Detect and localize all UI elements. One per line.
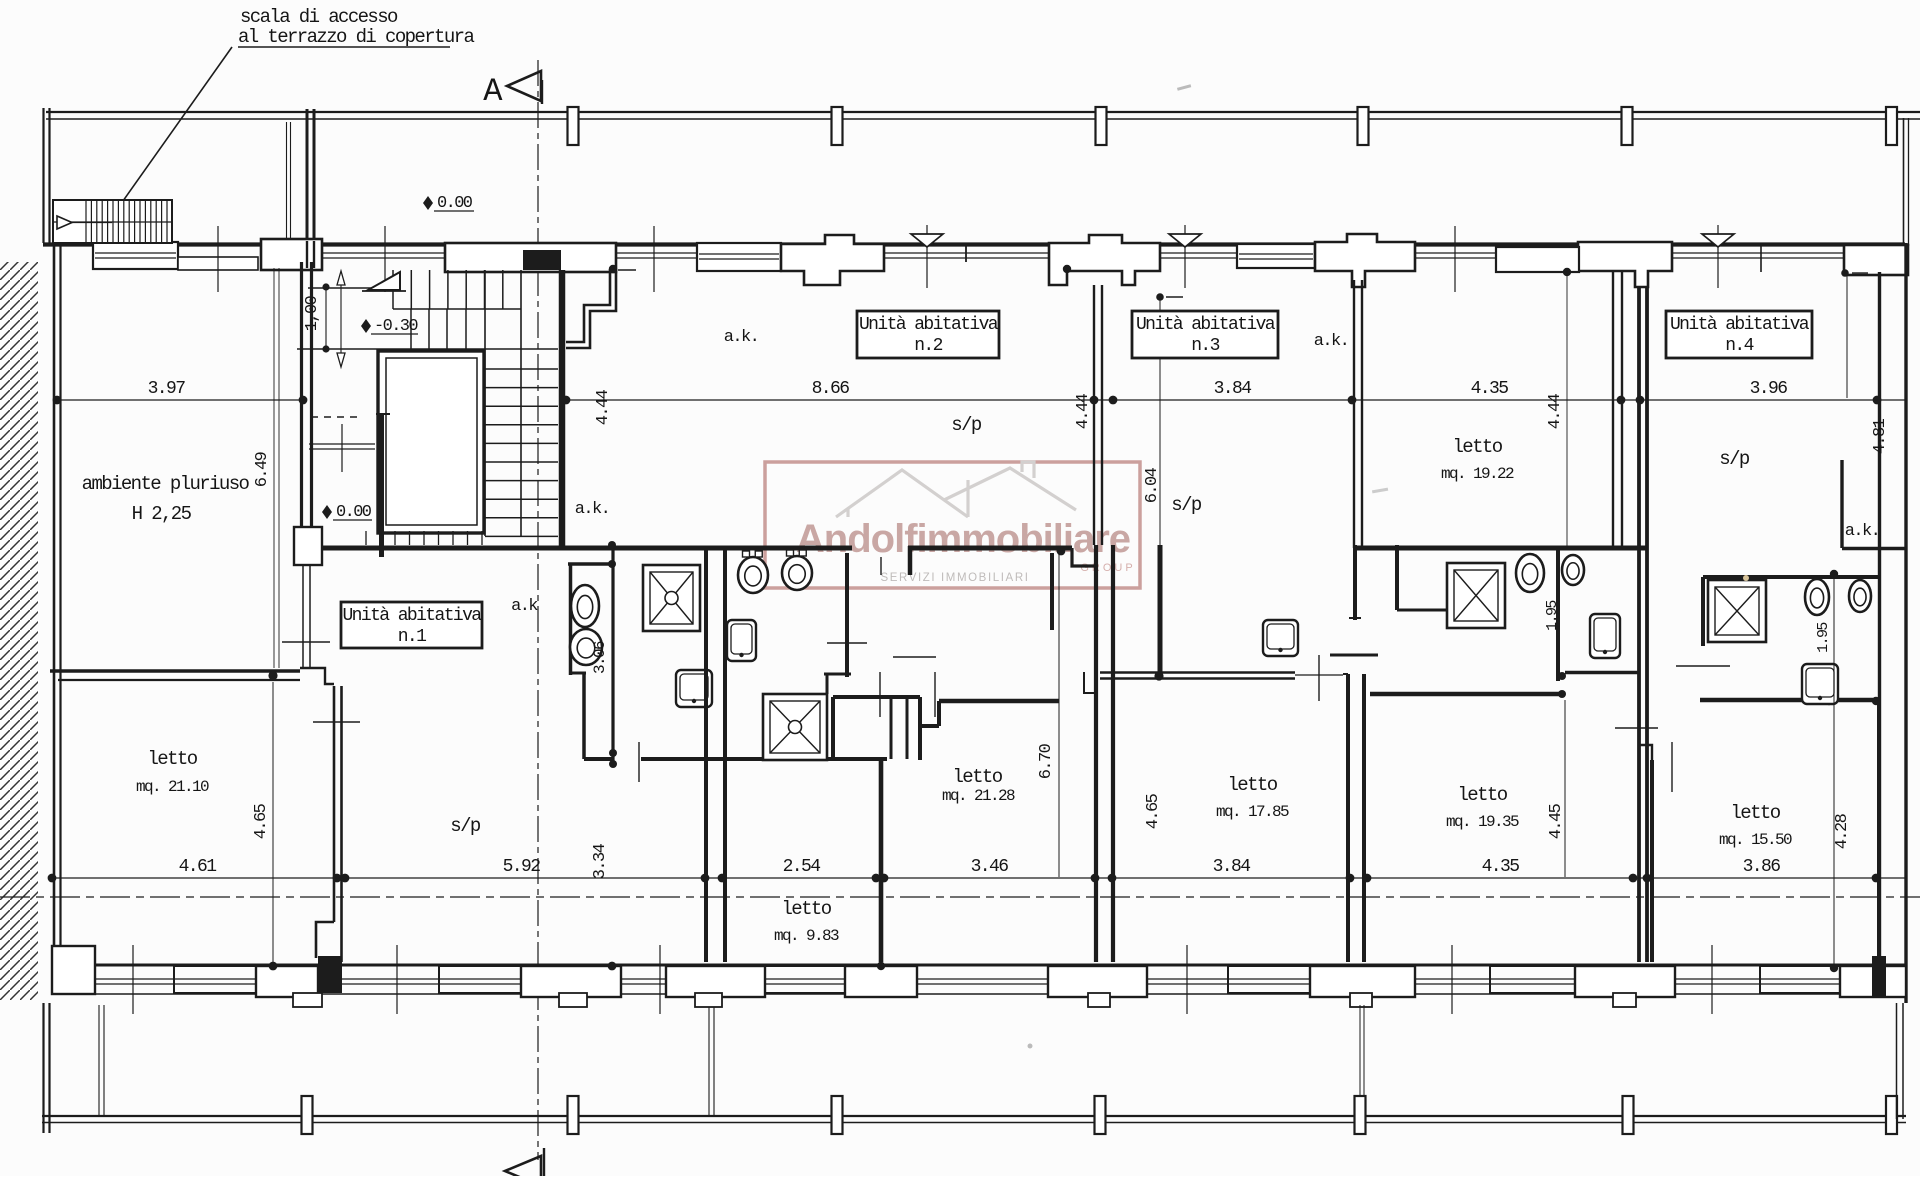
svg-text:letto: letto bbox=[781, 898, 831, 920]
svg-text:8.66: 8.66 bbox=[812, 379, 850, 399]
svg-text:letto: letto bbox=[1227, 774, 1277, 796]
svg-text:a.k: a.k bbox=[511, 597, 538, 616]
svg-text:letto: letto bbox=[1730, 802, 1780, 824]
svg-text:Unità abitativa: Unità abitativa bbox=[859, 315, 999, 335]
svg-text:4.35: 4.35 bbox=[1471, 379, 1509, 399]
svg-text:3.97: 3.97 bbox=[148, 379, 186, 399]
svg-text:s/p: s/p bbox=[1171, 494, 1202, 516]
svg-text:1.95: 1.95 bbox=[1815, 622, 1832, 653]
svg-text:4.44: 4.44 bbox=[594, 389, 613, 425]
svg-text:0.00: 0.00 bbox=[437, 194, 473, 213]
svg-text:s/p: s/p bbox=[951, 414, 982, 436]
svg-text:A: A bbox=[483, 73, 503, 110]
svg-text:6.04: 6.04 bbox=[1143, 467, 1162, 503]
svg-text:letto: letto bbox=[1457, 784, 1507, 806]
svg-text:n.1: n.1 bbox=[398, 627, 426, 647]
svg-text:Unità abitativa: Unità abitativa bbox=[1670, 315, 1810, 335]
svg-text:al terrazzo di copertura: al terrazzo di copertura bbox=[238, 26, 474, 48]
svg-text:4.61: 4.61 bbox=[179, 857, 217, 877]
svg-text:mq. 9.83: mq. 9.83 bbox=[774, 927, 839, 945]
svg-text:a.k.: a.k. bbox=[724, 328, 758, 347]
svg-text:mq. 19.35: mq. 19.35 bbox=[1446, 813, 1519, 831]
svg-text:4.28: 4.28 bbox=[1833, 813, 1852, 849]
svg-text:ambiente pluriuso: ambiente pluriuso bbox=[82, 473, 250, 495]
svg-text:2.54: 2.54 bbox=[783, 857, 821, 877]
svg-text:3.84: 3.84 bbox=[1214, 379, 1252, 399]
svg-text:mq. 21.10: mq. 21.10 bbox=[136, 778, 209, 796]
svg-text:5.92: 5.92 bbox=[503, 857, 541, 877]
svg-text:H 2,25: H 2,25 bbox=[132, 503, 192, 525]
svg-text:a.k.: a.k. bbox=[575, 500, 609, 519]
svg-text:letto: letto bbox=[1452, 436, 1502, 458]
svg-text:3.84: 3.84 bbox=[1213, 857, 1251, 877]
svg-text:GROUP: GROUP bbox=[1080, 562, 1135, 574]
svg-text:4.81: 4.81 bbox=[1871, 418, 1890, 454]
svg-text:n.3: n.3 bbox=[1191, 336, 1219, 356]
svg-text:mq. 17.85: mq. 17.85 bbox=[1216, 803, 1289, 821]
svg-text:0.00: 0.00 bbox=[336, 503, 372, 522]
svg-text:4.65: 4.65 bbox=[252, 803, 271, 839]
svg-text:a.k.: a.k. bbox=[1845, 522, 1879, 541]
svg-text:mq. 19.22: mq. 19.22 bbox=[1441, 465, 1514, 483]
svg-text:scala di accesso: scala di accesso bbox=[240, 6, 398, 28]
svg-text:4.44: 4.44 bbox=[1074, 393, 1093, 429]
svg-text:3.34: 3.34 bbox=[591, 843, 610, 879]
svg-text:4.35: 4.35 bbox=[1482, 857, 1520, 877]
svg-text:SERVIZI IMMOBILIARI: SERVIZI IMMOBILIARI bbox=[880, 572, 1029, 584]
svg-text:4.65: 4.65 bbox=[1144, 793, 1163, 829]
svg-text:Unità abitativa: Unità abitativa bbox=[342, 606, 482, 626]
svg-text:4.44: 4.44 bbox=[1546, 393, 1565, 429]
svg-text:3.96: 3.96 bbox=[1750, 379, 1788, 399]
svg-text:n.2: n.2 bbox=[914, 336, 942, 356]
svg-text:s/p: s/p bbox=[450, 815, 481, 837]
svg-text:Unità abitativa: Unità abitativa bbox=[1136, 315, 1276, 335]
svg-text:letto: letto bbox=[147, 748, 197, 770]
svg-text:letto: letto bbox=[952, 766, 1002, 788]
svg-text:mq. 15.50: mq. 15.50 bbox=[1719, 831, 1792, 849]
svg-text:3.06: 3.06 bbox=[591, 641, 609, 674]
svg-text:s/p: s/p bbox=[1719, 448, 1750, 470]
svg-text:mq. 21.28: mq. 21.28 bbox=[942, 787, 1015, 805]
svg-text:6.49: 6.49 bbox=[253, 451, 272, 487]
svg-text:6.70: 6.70 bbox=[1037, 743, 1056, 779]
svg-text:3.86: 3.86 bbox=[1743, 857, 1781, 877]
svg-text:4.45: 4.45 bbox=[1547, 803, 1566, 839]
svg-text:-0.30: -0.30 bbox=[374, 317, 418, 336]
svg-text:a.k.: a.k. bbox=[1314, 332, 1348, 351]
svg-text:n.4: n.4 bbox=[1725, 336, 1753, 356]
svg-text:3.46: 3.46 bbox=[971, 857, 1009, 877]
